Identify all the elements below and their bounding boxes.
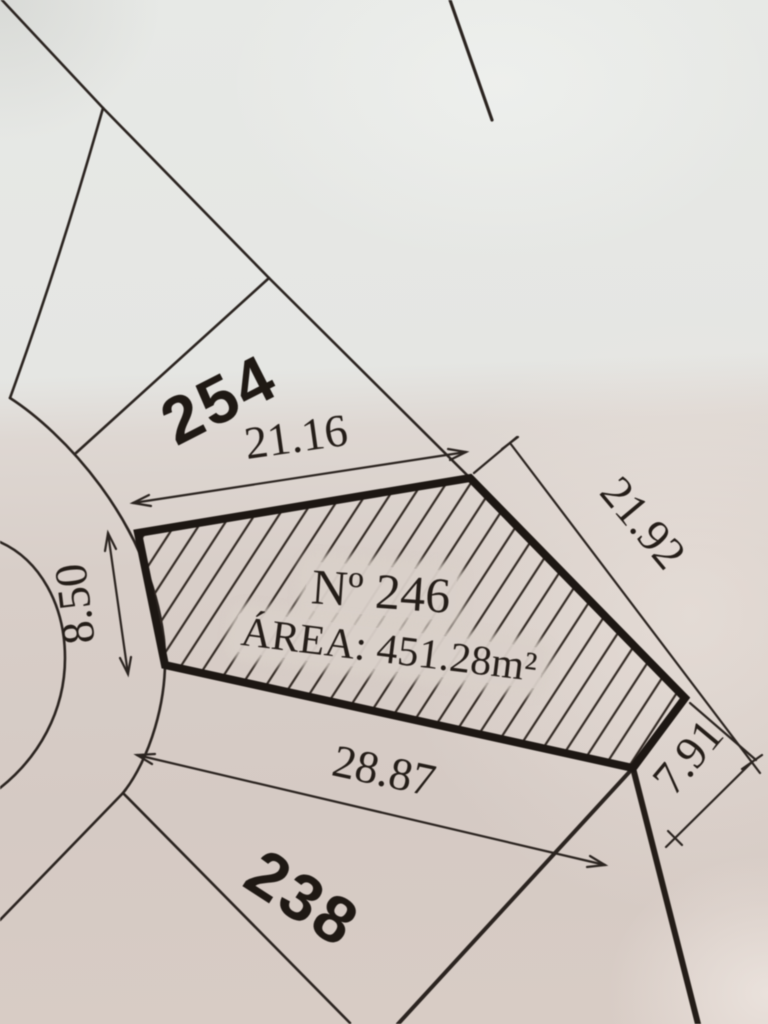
extension-line-b (474, 437, 517, 473)
street-corner-line (0, 793, 123, 920)
boundary-line-lot254-north (103, 108, 269, 278)
survey-plan-photo: 254 238 21.16 21.92 8.50 28.87 7.91 Nº 2… (0, 0, 768, 1024)
plan-scene: 254 238 21.16 21.92 8.50 28.87 7.91 Nº 2… (0, 0, 768, 1024)
boundary-line-lot238-east (398, 768, 633, 1024)
lot-246-number-label: Nº 246 (304, 561, 458, 621)
lot-246-boundary (138, 478, 685, 768)
boundary-line-northwest (2, 0, 103, 108)
boundary-line-northeast (450, 0, 492, 120)
dimension-line-left (108, 533, 128, 674)
boundary-line-west (10, 108, 103, 398)
dimension-label-left: 8.50 (47, 561, 102, 647)
boundary-line-southeast (633, 768, 698, 1024)
